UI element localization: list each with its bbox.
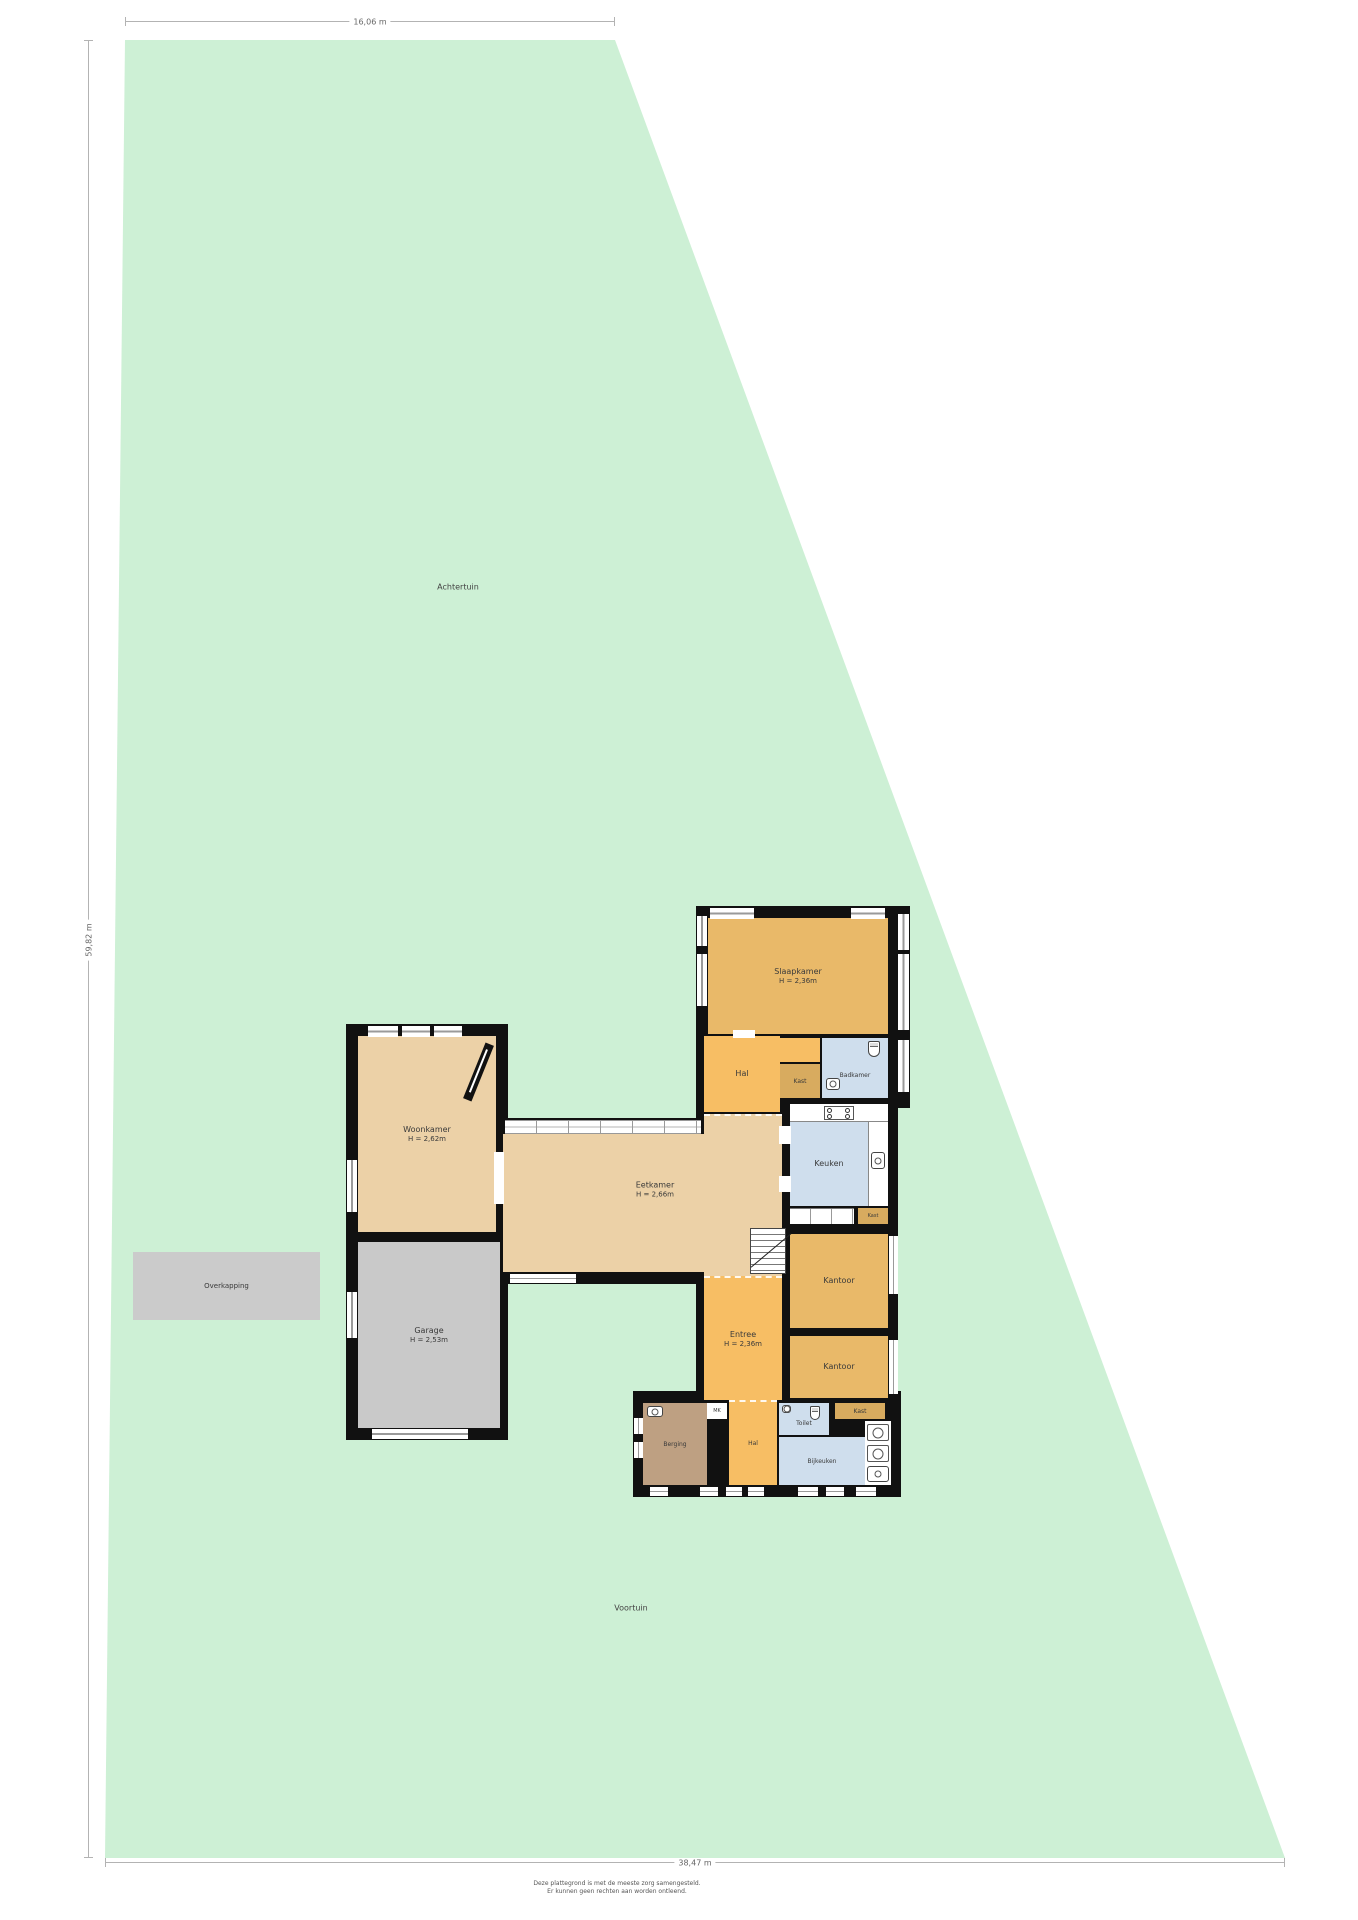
room-height: H = 2,36m — [724, 1340, 762, 1349]
left-dimension-tick-top — [84, 40, 93, 41]
room-kast-boven: Kast — [780, 1064, 820, 1098]
kitchen-cabinets — [790, 1208, 854, 1224]
toilet-sink-icon — [782, 1405, 791, 1413]
window — [898, 954, 909, 1030]
door-opening — [779, 1126, 791, 1144]
room-label: Hal — [748, 1440, 758, 1447]
room-hal-boven: Hal — [704, 1036, 780, 1112]
staircase — [750, 1228, 786, 1274]
back-garden-label: Achtertuin — [437, 583, 479, 592]
room-height: H = 2,36m — [779, 977, 817, 986]
room-height: H = 2,66m — [636, 1191, 675, 1200]
window — [826, 1487, 844, 1496]
door-opening — [779, 1176, 791, 1192]
window — [434, 1026, 462, 1037]
sink-icon — [826, 1078, 840, 1090]
window — [368, 1026, 398, 1037]
door-opening — [733, 1030, 755, 1038]
top-dimension-tick-right — [614, 17, 615, 26]
room-label: Kantoor — [823, 1276, 854, 1286]
storage-sink-icon — [647, 1406, 663, 1417]
door-opening — [494, 1152, 504, 1204]
room-entree: Entree H = 2,36m — [704, 1276, 782, 1400]
window — [634, 1442, 643, 1458]
room-label: Bijkeuken — [808, 1458, 837, 1465]
room-label: Hal — [735, 1069, 748, 1079]
disclaimer: Deze plattegrond is met de meeste zorg s… — [417, 1880, 817, 1896]
front-garden-label: Voortuin — [614, 1604, 647, 1613]
toilet-icon-small — [810, 1406, 820, 1420]
garden-plot — [0, 0, 1358, 1920]
room-label: Toilet — [796, 1420, 812, 1427]
room-label: Slaapkamer — [774, 967, 822, 977]
kitchen-sink-icon — [871, 1152, 885, 1169]
room-bijkeuken: Bijkeuken — [779, 1437, 865, 1485]
room-label: Garage — [414, 1326, 443, 1336]
floor-plan-page: Achtertuin Voortuin Overkapping 16,06 m … — [0, 0, 1358, 1920]
room-height: H = 2,53m — [410, 1336, 448, 1345]
room-hal-beneden: Hal — [729, 1400, 777, 1485]
canopy-area: Overkapping — [133, 1252, 320, 1320]
room-label: Kast — [794, 1078, 807, 1085]
left-dimension-label: 59,82 m — [85, 919, 94, 960]
room-label: Woonkamer — [403, 1125, 451, 1135]
window — [710, 908, 754, 919]
dining-label-block: Eetkamer H = 2,66m — [636, 1181, 675, 1200]
window — [347, 1292, 357, 1338]
top-dimension-label: 16,06 m — [349, 18, 390, 27]
garage-door — [372, 1429, 468, 1439]
window — [510, 1274, 576, 1283]
utility-sink-icon — [867, 1466, 889, 1482]
left-dimension-tick-bottom — [84, 1857, 93, 1858]
room-label: Kast — [854, 1408, 867, 1415]
window — [748, 1487, 764, 1496]
room-meterkast: MK — [707, 1403, 727, 1419]
bottom-dimension-label: 38,47 m — [674, 1859, 715, 1868]
bottom-dimension-tick-right — [1284, 1858, 1285, 1867]
window — [697, 954, 707, 1006]
window — [898, 914, 909, 950]
room-label: Berging — [663, 1441, 686, 1448]
window — [889, 1340, 898, 1394]
window — [851, 908, 885, 919]
room-height: H = 2,62m — [408, 1135, 446, 1144]
washer-icon — [867, 1424, 889, 1441]
room-label: Entree — [730, 1330, 756, 1340]
room-kast-beneden: Kast — [835, 1403, 885, 1419]
hall-corridor — [780, 1038, 820, 1062]
room-label: Keuken — [814, 1159, 843, 1169]
window — [634, 1418, 643, 1434]
window — [798, 1487, 818, 1496]
window — [856, 1487, 876, 1496]
window — [726, 1487, 742, 1496]
room-kantoor-boven: Kantoor — [790, 1234, 888, 1328]
window — [700, 1487, 718, 1496]
disclaimer-line1: Deze plattegrond is met de meeste zorg s… — [417, 1880, 817, 1888]
bottom-dimension-tick-left — [105, 1858, 106, 1867]
toilet-icon — [868, 1041, 880, 1057]
room-label: Eetkamer — [636, 1181, 675, 1191]
window — [650, 1487, 668, 1496]
disclaimer-line2: Er kunnen geen rechten aan worden ontlee… — [417, 1888, 817, 1896]
room-label: MK — [713, 1408, 721, 1414]
room-eetkamer — [503, 1134, 706, 1272]
canopy-label: Overkapping — [204, 1282, 249, 1290]
window — [898, 1040, 909, 1092]
room-kast-keuken: Kast — [858, 1208, 888, 1224]
room-garage: Garage H = 2,53m — [358, 1242, 500, 1428]
window — [697, 916, 707, 946]
dining-window-band — [505, 1120, 701, 1134]
room-keuken: Keuken — [790, 1122, 868, 1206]
top-dimension-tick-left — [125, 17, 126, 26]
room-label: Badkamer — [840, 1072, 871, 1079]
dryer-icon — [867, 1445, 889, 1462]
room-slaapkamer: Slaapkamer H = 2,36m — [708, 918, 888, 1034]
room-label: Kantoor — [823, 1362, 854, 1372]
window — [347, 1160, 357, 1212]
stove-icon — [824, 1106, 854, 1120]
window — [402, 1026, 430, 1037]
room-label: Kast — [868, 1213, 879, 1219]
window — [889, 1236, 898, 1294]
room-kantoor-onder: Kantoor — [790, 1336, 888, 1398]
